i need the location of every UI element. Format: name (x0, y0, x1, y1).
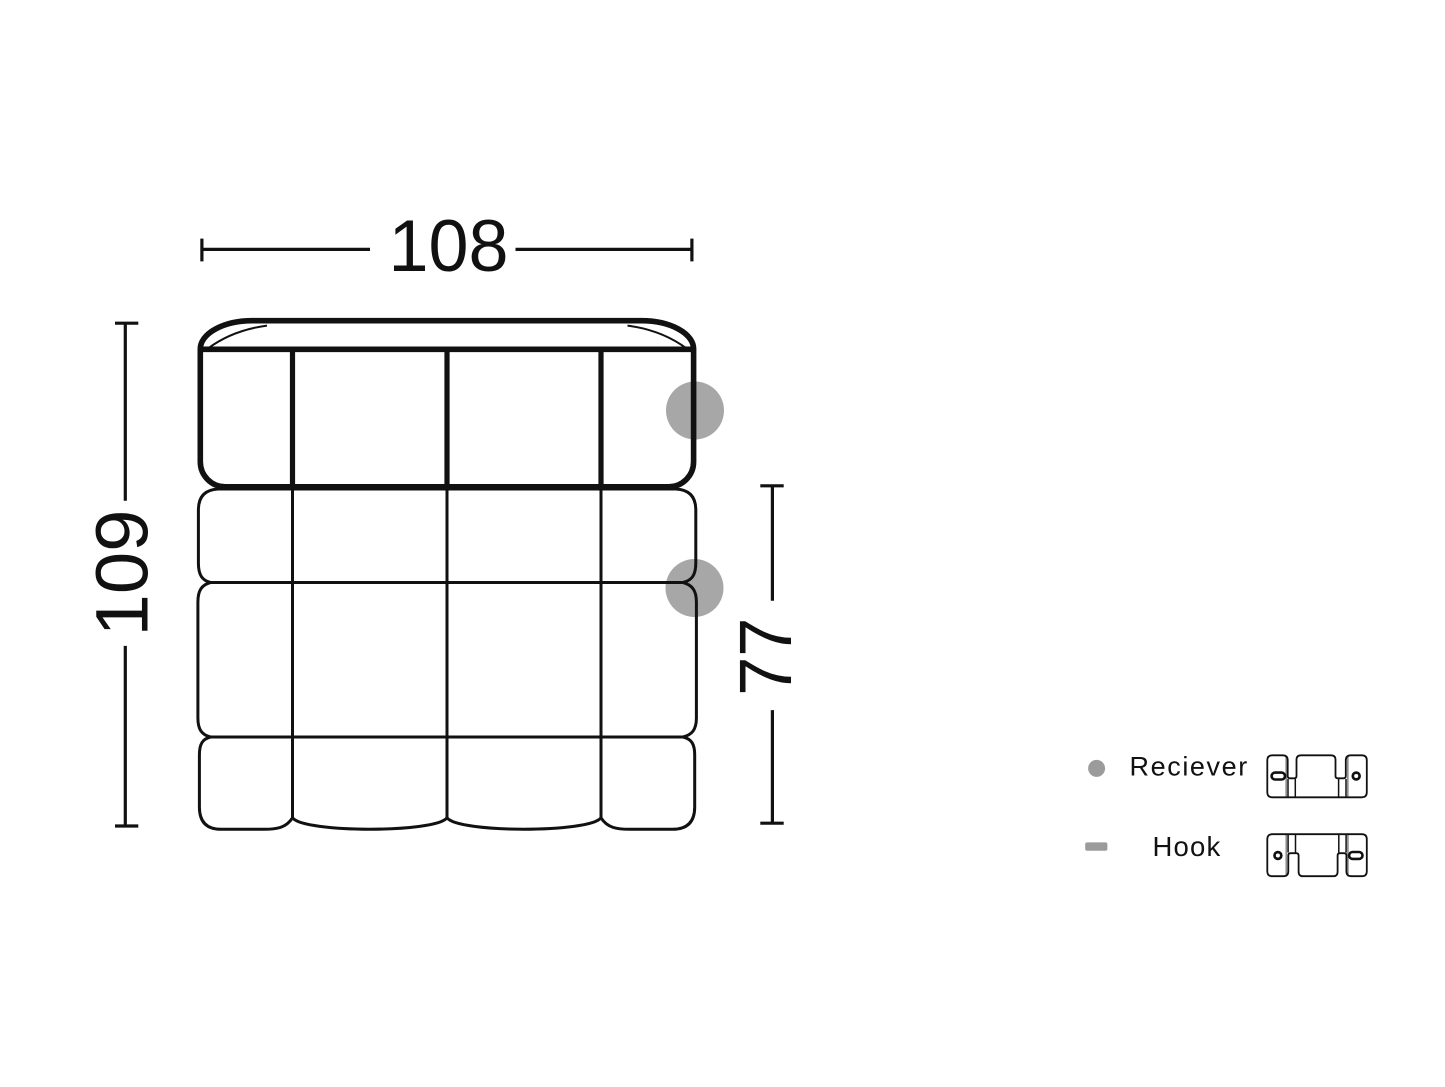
svg-text:Hook: Hook (1153, 831, 1222, 862)
svg-text:109: 109 (81, 510, 164, 637)
svg-text:108: 108 (389, 206, 509, 287)
svg-text:77: 77 (724, 618, 807, 696)
svg-text:Reciever: Reciever (1130, 752, 1249, 782)
